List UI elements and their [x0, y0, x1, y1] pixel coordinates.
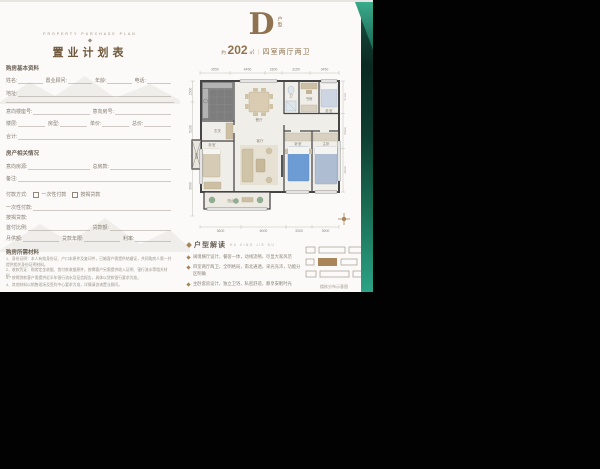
- field-unitprice-line: [102, 121, 129, 127]
- unit-interpretation: 户型解读 HU XING JIE DU 阔境横厅设计，餐客一体，动线流畅，尽显大…: [187, 240, 303, 292]
- bedroom2-furniture: [285, 133, 312, 181]
- field-unitprice-label: 单价:: [90, 120, 101, 127]
- form-row-identity: 姓名: 置业顾问: 年龄: 电话:: [6, 77, 174, 84]
- room-label-study: 书房: [306, 96, 314, 101]
- loan-line: [110, 225, 171, 231]
- diamond-icon: [186, 242, 192, 248]
- payment-opt1-label: 一次性付款: [41, 191, 66, 198]
- field-type-line: [60, 121, 87, 127]
- rate-label: 利率:: [123, 235, 134, 242]
- field-age-label: 年龄:: [95, 77, 106, 84]
- dim-label: 6000: [260, 229, 268, 233]
- room-label-entry: 玄关: [214, 128, 221, 133]
- form-row-mortgage: 按揭贷款:: [6, 214, 174, 221]
- field-floor-line: [18, 121, 45, 127]
- materials-item: 4、其他材料以销售现场及签约中心要求为准，详情请咨询置业顾问。: [6, 283, 174, 289]
- black-backdrop: PROPERTY PURCHASE PLAN 置业计划表 购房基本资料 姓名: …: [0, 0, 600, 469]
- ornament-diamond-icon: [88, 38, 92, 42]
- dim-label: 3450: [321, 68, 329, 72]
- floorplan-drawing: 3550 4450 1800 3150 3450 1500 5100 3900: [186, 66, 346, 242]
- dim-label: 3300: [295, 229, 303, 233]
- field-name-label: 姓名:: [6, 77, 17, 84]
- living-room-furniture: [240, 145, 283, 185]
- bullet-text: 阔境横厅设计，餐客一体，动线流畅，尽显大家风范: [193, 254, 292, 260]
- downpay-label: 首付比例:: [6, 224, 27, 231]
- address-extra-line: [6, 102, 174, 103]
- payment-opt2-label: 按揭贷款: [80, 191, 100, 198]
- dim-label: 1800: [270, 68, 278, 72]
- years-label: 贷款年限:: [62, 235, 83, 242]
- field-room-line: [115, 109, 171, 115]
- interpretation-title: 户型解读: [194, 240, 226, 250]
- area-value: 202: [228, 43, 248, 57]
- dim-label: 3150: [292, 68, 300, 72]
- bedroom3-furniture: [321, 84, 337, 107]
- checkbox-mortgage-icon: [72, 192, 78, 198]
- dim-label: 1500: [189, 88, 193, 96]
- dim-label: 3550: [211, 68, 219, 72]
- dim-label: 5100: [189, 125, 193, 133]
- field-room-label: 意向房号:: [93, 108, 114, 115]
- form-row-sum: 合计:: [6, 133, 174, 140]
- rooms-desc: 四室两厅两卫: [263, 49, 311, 56]
- field-phone-label: 电话:: [135, 77, 146, 84]
- field-block-line: [33, 109, 89, 115]
- unit-hero: D 户型 约 202 ㎡ ｜ 四室两厅两卫: [186, 10, 346, 57]
- field-note-label: 备注:: [6, 175, 17, 182]
- brand-caps: PROPERTY PURCHASE PLAN: [6, 32, 174, 36]
- field-floor-label: 楼层:: [6, 120, 17, 127]
- form-row-mortgage2: 月供额: 贷款年限: 利率:: [6, 235, 174, 242]
- field-address-label: 地址:: [6, 90, 17, 97]
- rate-line: [135, 236, 171, 242]
- field-type-label: 房型:: [48, 120, 59, 127]
- room-label-bed4: 卧室: [209, 142, 216, 147]
- compass-icon: [338, 213, 350, 225]
- field-age-line: [107, 78, 131, 84]
- unit-suffix: 户型: [277, 16, 284, 28]
- field-intent-line: [28, 164, 89, 170]
- brochure-page: PROPERTY PURCHASE PLAN 置业计划表 购房基本资料 姓名: …: [0, 0, 373, 292]
- entry-cabinet: [226, 123, 233, 139]
- field-amount-label: 总房款:: [93, 163, 109, 170]
- subtitle-separator: ｜: [256, 50, 261, 56]
- field-total-line: [144, 121, 171, 127]
- field-consultant-line: [68, 78, 92, 84]
- years-line: [84, 236, 120, 242]
- field-total-label: 总价:: [132, 120, 143, 127]
- field-sum-line: [18, 134, 171, 140]
- keyplan-caption: 楼栋分布示意图: [320, 283, 348, 289]
- monthly-label: 月供额:: [6, 235, 22, 242]
- lump-label: 一次性付款:: [6, 204, 32, 211]
- form-row-intent: 意向房源: 总房款:: [6, 163, 174, 170]
- dim-label: 3300: [344, 127, 346, 135]
- kitchen-area: [202, 82, 233, 120]
- form-row-lump: 一次性付款:: [6, 204, 174, 211]
- room-label-bath: 卫: [289, 94, 293, 98]
- field-sum-label: 合计:: [6, 133, 17, 140]
- dim-label: 4500: [344, 166, 346, 174]
- room-label-dining: 餐厅: [256, 117, 264, 122]
- room-label-living: 客厅: [257, 138, 265, 143]
- master-bedroom-furniture: [313, 133, 338, 184]
- room-label-lift: 电梯: [194, 153, 199, 159]
- field-name-line: [18, 78, 42, 84]
- room-label-bed3: 卧室: [326, 108, 334, 113]
- materials-item: 3、按揭贷款客户需提供近半年银行流水及征信报告，具体以贷款银行要求为准。: [6, 276, 174, 282]
- field-block-label: 意向楼座号:: [6, 108, 32, 115]
- area-unit: ㎡: [249, 50, 254, 56]
- unit-subtitle: 约 202 ㎡ ｜ 四室两厅两卫: [186, 43, 346, 57]
- unit-letter: D: [248, 10, 274, 40]
- bullet-text: 主卧套房设计，独立卫浴，私密舒适，静享安眠时光: [193, 281, 292, 287]
- field-consultant-label: 置业顾问:: [46, 77, 67, 84]
- purchase-plan-form: PROPERTY PURCHASE PLAN 置业计划表 购房基本资料 姓名: …: [6, 2, 174, 292]
- dim-label: 2100: [344, 93, 346, 101]
- form-row-payment: 付款方式: 一次性付款 按揭贷款: [6, 191, 174, 198]
- materials-item: 1、身份证明：本人有效身份证、户口本原件及复印件，已婚客户需提供结婚证，共同购房…: [6, 257, 174, 269]
- field-note-line: [18, 176, 171, 182]
- form-row-mortgage1: 首付比例: 贷款额:: [6, 224, 174, 231]
- section-property-info: 房产相关情况: [6, 149, 39, 157]
- monthly-line: [23, 236, 59, 242]
- field-phone-line: [147, 78, 171, 84]
- checkbox-lump-icon: [33, 192, 39, 198]
- loan-label: 贷款额:: [93, 224, 109, 231]
- interpretation-bullet: 主卧套房设计，独立卫浴，私密舒适，静享安眠时光: [187, 281, 303, 287]
- room-label-master: 主卧: [323, 141, 331, 146]
- dim-label: 3600: [217, 229, 225, 233]
- dimension-line-top: [200, 71, 339, 75]
- room-label-kitchen: 厨房: [214, 123, 221, 128]
- dimension-line-bottom: [200, 225, 339, 229]
- field-address-line: [18, 91, 171, 97]
- bullet-text: 四室两厅两卫，全明格局，南北通透，采光充沛，功能分区明确: [193, 264, 303, 277]
- diamond-icon: [186, 255, 190, 259]
- section-basic-info: 购房基本资料: [6, 64, 39, 72]
- interpretation-bullet: 阔境横厅设计，餐客一体，动线流畅，尽显大家风范: [187, 254, 303, 260]
- dim-label: 4450: [244, 68, 252, 72]
- area-approx: 约: [221, 50, 226, 55]
- payment-label: 付款方式:: [6, 191, 27, 198]
- highlighted-unit: [318, 258, 337, 266]
- building-keyplan: 楼栋分布示意图: [305, 245, 363, 291]
- field-intent-label: 意向房源:: [6, 163, 27, 170]
- interpretation-bullet: 四室两厅两卫，全明格局，南北通透，采光充沛，功能分区明确: [187, 264, 303, 277]
- mortgage-label: 按揭贷款:: [6, 214, 27, 221]
- lump-line: [33, 205, 171, 211]
- interpretation-subtitle: HU XING JIE DU: [230, 243, 275, 247]
- dim-label: 3900: [322, 229, 330, 233]
- field-amount-line: [110, 164, 171, 170]
- downpay-line: [28, 225, 89, 231]
- form-row-intent-block: 意向楼座号: 意向房号:: [6, 108, 174, 115]
- room-label-bed2: 卧室: [295, 141, 303, 146]
- section-materials: 购房所需材料: [6, 248, 39, 256]
- room-label-balcony: 阳台: [228, 198, 235, 203]
- form-row-address: 地址:: [6, 90, 174, 97]
- form-title: 置业计划表: [6, 44, 174, 60]
- teal-accent-band: [361, 2, 373, 292]
- diamond-icon: [186, 283, 190, 287]
- dim-label: 3900: [189, 182, 193, 190]
- form-row-price: 楼层: 房型: 单价: 总价:: [6, 120, 174, 127]
- form-row-note: 备注:: [6, 175, 174, 182]
- diamond-icon: [186, 266, 190, 270]
- bedroom4-furniture: [203, 149, 221, 189]
- dining-table: [245, 88, 273, 116]
